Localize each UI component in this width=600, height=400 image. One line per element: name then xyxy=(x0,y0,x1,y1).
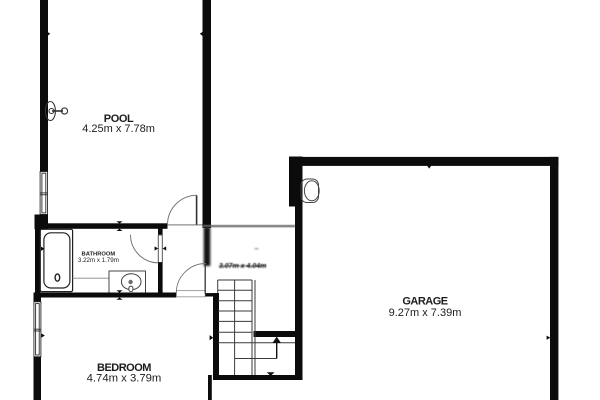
svg-text:3.22m x 1.79m: 3.22m x 1.79m xyxy=(78,257,119,264)
svg-text:9.27m x 7.39m: 9.27m x 7.39m xyxy=(389,307,462,319)
svg-text:4.25m x 7.78m: 4.25m x 7.78m xyxy=(82,123,155,135)
svg-text:4.74m x 3.79m: 4.74m x 3.79m xyxy=(87,373,162,385)
svg-text:3.07m x 4.04m: 3.07m x 4.04m xyxy=(219,261,267,270)
svg-text:GARAGE: GARAGE xyxy=(402,296,447,308)
